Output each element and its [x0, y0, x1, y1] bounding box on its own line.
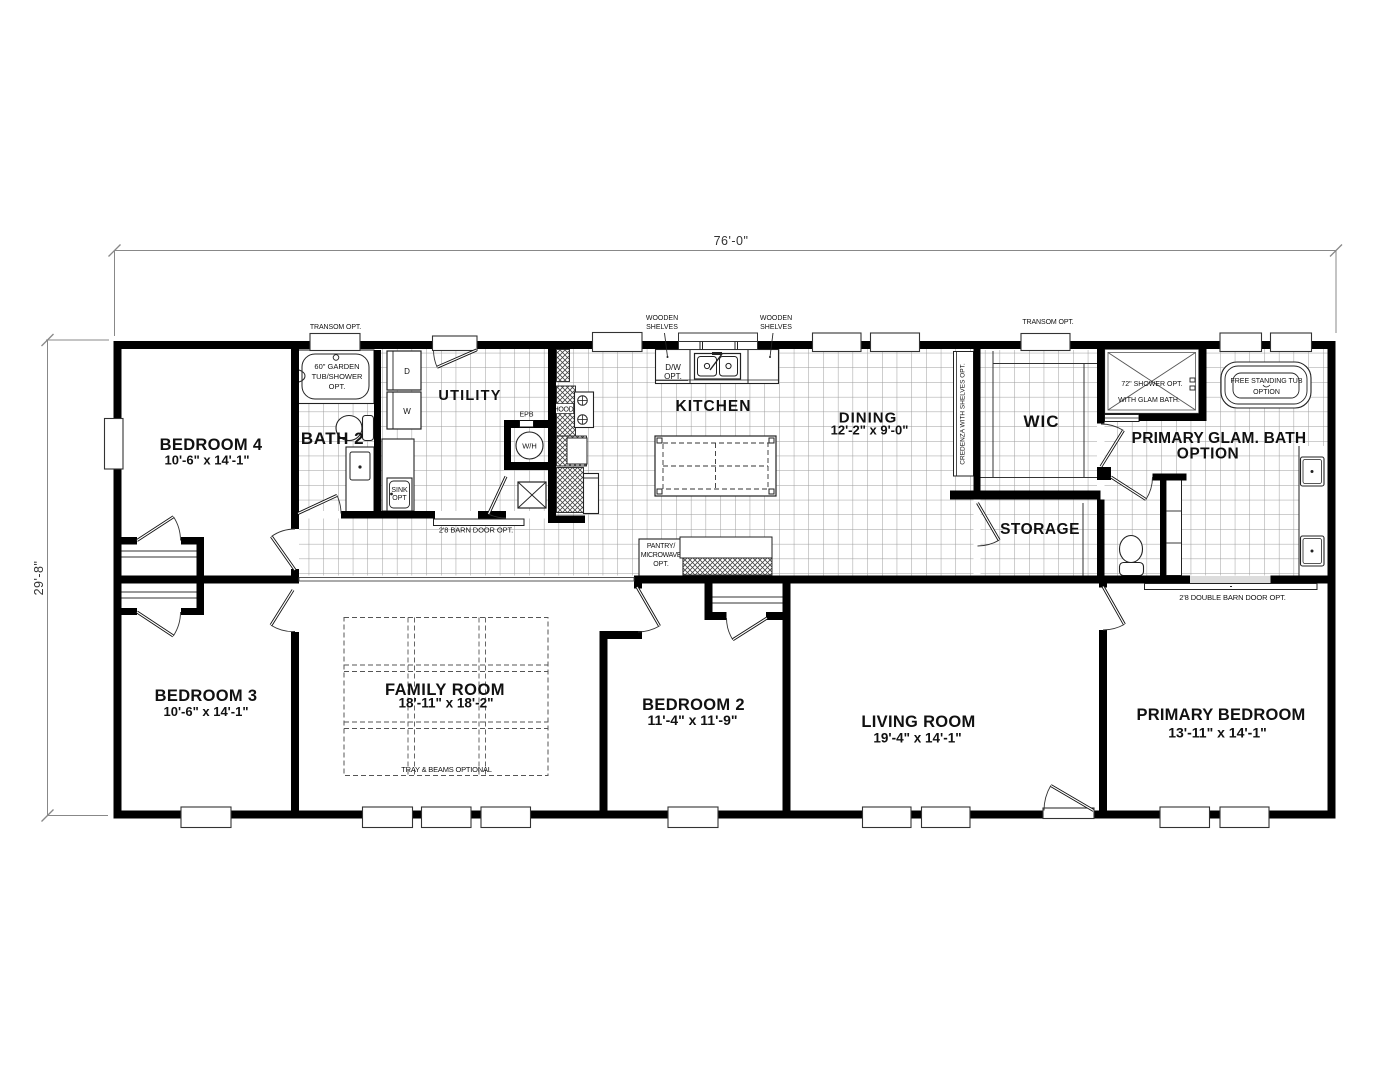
svg-text:PRIMARY BEDROOM: PRIMARY BEDROOM	[1137, 706, 1306, 724]
svg-text:PRIMARY GLAM. BATH: PRIMARY GLAM. BATH	[1132, 430, 1307, 447]
svg-text:OPT.: OPT.	[653, 561, 669, 568]
svg-text:FREE STANDING TUB: FREE STANDING TUB	[1230, 378, 1302, 385]
svg-text:OPT: OPT	[392, 495, 407, 502]
svg-text:12'-2" x 9'-0": 12'-2" x 9'-0"	[831, 423, 909, 438]
svg-text:EPB: EPB	[519, 412, 533, 419]
svg-text:TRANSOM OPT.: TRANSOM OPT.	[1022, 319, 1073, 326]
svg-text:SHELVES: SHELVES	[646, 324, 678, 331]
svg-text:LIVING ROOM: LIVING ROOM	[861, 713, 975, 731]
svg-text:WOODEN: WOODEN	[760, 315, 792, 322]
svg-text:CREDENZA WITH SHELVES OPT.: CREDENZA WITH SHELVES OPT.	[960, 363, 967, 465]
svg-text:2'8 BARN DOOR OPT.: 2'8 BARN DOOR OPT.	[439, 526, 513, 535]
svg-text:TUB/SHOWER: TUB/SHOWER	[312, 372, 363, 381]
svg-text:D: D	[404, 367, 410, 376]
svg-text:BATH 2: BATH 2	[301, 429, 364, 448]
svg-text:11'-4" x 11'-9": 11'-4" x 11'-9"	[648, 712, 738, 728]
svg-text:OPTION: OPTION	[1253, 389, 1280, 396]
svg-text:76'-0": 76'-0"	[714, 234, 749, 248]
svg-text:13'-11" x 14'-1": 13'-11" x 14'-1"	[1168, 725, 1267, 741]
svg-text:BEDROOM 3: BEDROOM 3	[155, 687, 258, 705]
svg-text:WIC: WIC	[1023, 412, 1059, 431]
svg-text:WITH GLAM BATH.: WITH GLAM BATH.	[1118, 397, 1180, 404]
svg-text:TRANSOM OPT.: TRANSOM OPT.	[310, 324, 361, 331]
svg-text:KITCHEN: KITCHEN	[676, 398, 752, 415]
svg-text:BEDROOM 4: BEDROOM 4	[160, 436, 263, 454]
svg-text:29'-8": 29'-8"	[32, 561, 46, 596]
svg-text:OPT.: OPT.	[329, 382, 346, 391]
svg-text:OPTION: OPTION	[1177, 446, 1239, 463]
svg-text:SHELVES: SHELVES	[760, 324, 792, 331]
svg-text:TRAY & BEAMS OPTIONAL: TRAY & BEAMS OPTIONAL	[401, 765, 492, 774]
svg-text:SINK: SINK	[391, 487, 408, 494]
svg-text:19'-4" x 14'-1": 19'-4" x 14'-1"	[873, 731, 961, 746]
svg-text:MICROWAVE: MICROWAVE	[641, 552, 682, 559]
svg-text:72" SHOWER OPT.: 72" SHOWER OPT.	[1121, 381, 1182, 388]
svg-text:HOOD: HOOD	[554, 407, 574, 414]
svg-text:D/W: D/W	[665, 363, 681, 372]
svg-text:W/H: W/H	[522, 442, 537, 451]
svg-text:18'-11" x 18'-2": 18'-11" x 18'-2"	[398, 696, 493, 711]
svg-text:10'-6" x 14'-1": 10'-6" x 14'-1"	[163, 704, 248, 719]
svg-text:10'-6" x 14'-1": 10'-6" x 14'-1"	[164, 453, 249, 468]
svg-text:OPT.: OPT.	[664, 372, 682, 381]
svg-text:UTILITY: UTILITY	[438, 388, 501, 404]
svg-text:PANTRY/: PANTRY/	[647, 543, 676, 550]
svg-text:2'8 DOUBLE BARN DOOR OPT.: 2'8 DOUBLE BARN DOOR OPT.	[1179, 593, 1285, 602]
svg-text:60" GARDEN: 60" GARDEN	[314, 362, 359, 371]
svg-text:STORAGE: STORAGE	[1000, 521, 1080, 538]
svg-text:W: W	[403, 407, 411, 416]
svg-text:WOODEN: WOODEN	[646, 315, 678, 322]
